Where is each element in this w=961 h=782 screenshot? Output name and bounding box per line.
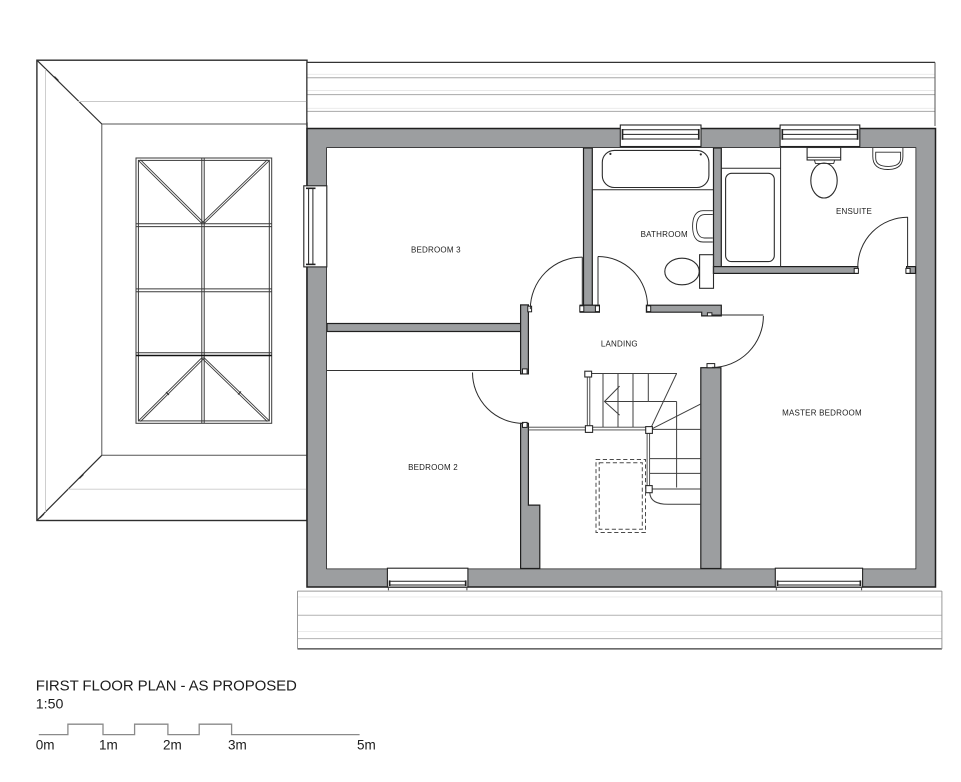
svg-text:5m: 5m	[357, 738, 376, 753]
svg-text:BEDROOM 2: BEDROOM 2	[408, 463, 458, 472]
svg-text:2m: 2m	[163, 738, 182, 753]
svg-text:ENSUITE: ENSUITE	[836, 207, 872, 216]
svg-text:3m: 3m	[228, 738, 247, 753]
svg-text:LANDING: LANDING	[601, 340, 638, 349]
svg-text:1m: 1m	[99, 738, 118, 753]
svg-text:1:50: 1:50	[36, 697, 64, 713]
svg-text:BEDROOM 3: BEDROOM 3	[411, 245, 461, 254]
svg-text:BATHROOM: BATHROOM	[641, 230, 688, 239]
svg-text:0m: 0m	[36, 738, 55, 753]
svg-text:FIRST FLOOR PLAN - AS PROPOSED: FIRST FLOOR PLAN - AS PROPOSED	[36, 678, 297, 695]
svg-text:MASTER BEDROOM: MASTER BEDROOM	[782, 409, 862, 418]
